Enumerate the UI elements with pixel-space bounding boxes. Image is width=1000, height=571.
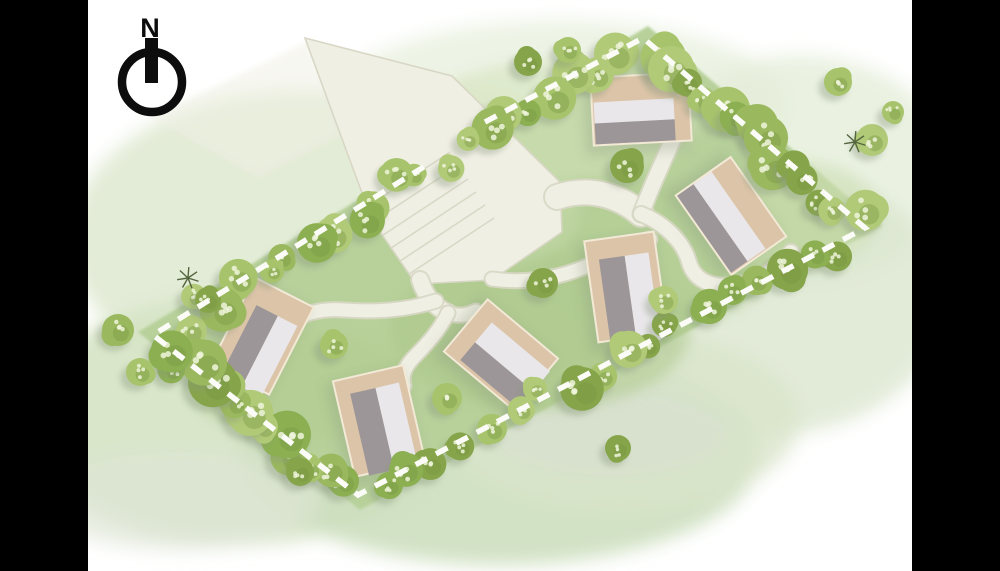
bare-tree-branch (188, 267, 189, 278)
tree-highlight (627, 167, 632, 172)
tree-highlight (840, 84, 844, 88)
tree-highlight (223, 375, 230, 382)
tree-highlight (199, 298, 203, 302)
tree-highlight (830, 255, 834, 259)
tree-highlight (669, 322, 673, 326)
tree-highlight (402, 172, 407, 177)
tree-highlight (385, 170, 390, 175)
letterbox-right (912, 0, 1000, 571)
tree-highlight (229, 276, 234, 281)
tree-highlight (873, 137, 877, 141)
tree-highlight (829, 259, 833, 263)
tree-canopy-dark (442, 394, 457, 409)
tree-highlight (574, 47, 578, 51)
tree-highlight (491, 430, 495, 434)
tree-highlight (660, 327, 664, 331)
tree-highlight (461, 449, 465, 453)
bare-tree-branch (855, 131, 856, 142)
tree-highlight (219, 309, 225, 315)
tree-highlight (854, 213, 860, 219)
tree-highlight (603, 379, 607, 383)
tree-highlight (676, 64, 683, 71)
masterplan-svg: N (0, 0, 1000, 571)
tree-highlight (761, 122, 767, 128)
tree-canopy-dark (425, 459, 441, 475)
tree-highlight (429, 461, 433, 465)
tree-highlight (622, 160, 627, 165)
tree-highlight (650, 344, 653, 347)
tree-highlight (862, 207, 868, 213)
tree-highlight (724, 285, 728, 289)
tree-highlight (628, 173, 633, 178)
tree-highlight (885, 108, 888, 111)
tree-highlight (322, 475, 327, 480)
tree-highlight (138, 375, 142, 379)
tree-highlight (538, 387, 541, 390)
tree-highlight (494, 127, 500, 133)
compass: N (122, 13, 182, 112)
tree-highlight (452, 167, 456, 171)
tree-highlight (271, 273, 274, 276)
tree-highlight (531, 65, 535, 69)
tree-highlight (457, 445, 461, 449)
tree-highlight (831, 210, 835, 214)
compass-needle (145, 38, 158, 83)
tree-highlight (296, 473, 300, 477)
tree-highlight (392, 478, 396, 482)
tree-highlight (388, 488, 392, 492)
tree-highlight (810, 203, 814, 207)
tree-highlight (617, 164, 622, 169)
tree-highlight (606, 372, 610, 376)
tree-highlight (161, 352, 167, 358)
tree-highlight (534, 387, 537, 390)
tree-highlight (405, 477, 410, 482)
tree-highlight (618, 41, 624, 47)
tree-highlight (729, 109, 733, 113)
letterbox-left (0, 0, 88, 571)
tree-highlight (314, 472, 318, 476)
tree-highlight (258, 403, 264, 409)
tree-highlight (522, 63, 526, 67)
tree-highlight (461, 136, 464, 139)
tree-highlight (137, 368, 141, 372)
tree-canopy-dark (464, 136, 475, 147)
tree-highlight (339, 346, 343, 350)
tree-highlight (858, 197, 864, 203)
tree-highlight (141, 367, 145, 371)
tree-highlight (274, 272, 277, 275)
tree-highlight (545, 283, 549, 287)
tree-highlight (659, 294, 663, 298)
tree-highlight (328, 464, 333, 469)
tree-highlight (562, 46, 566, 50)
tree-highlight (442, 164, 446, 168)
tree-highlight (814, 195, 818, 199)
tree-highlight (837, 82, 841, 86)
tree-highlight (730, 283, 734, 287)
tree-highlight (759, 166, 765, 172)
tree-highlight (212, 364, 218, 370)
tree-highlight (240, 402, 244, 406)
tree-highlight (862, 215, 868, 221)
tree-highlight (392, 167, 397, 172)
tree-highlight (190, 330, 194, 334)
site-plan-canvas: N (0, 0, 1000, 571)
tree-highlight (114, 320, 118, 324)
tree-highlight (300, 474, 304, 478)
tree-highlight (117, 325, 121, 329)
tree-canopy-dark (548, 92, 570, 114)
tree-highlight (194, 323, 198, 327)
tree-highlight (571, 388, 577, 394)
tree-highlight (491, 134, 497, 140)
tree-highlight (358, 212, 363, 217)
tree-highlight (316, 241, 322, 247)
tree-highlight (490, 426, 494, 430)
tree-highlight (468, 139, 471, 142)
tree-highlight (662, 320, 666, 324)
tree-canopy-dark (859, 204, 880, 225)
tree-highlight (272, 268, 275, 271)
tree-highlight (566, 49, 570, 53)
tree-highlight (777, 258, 783, 264)
tree-highlight (489, 125, 495, 131)
tree-highlight (232, 266, 237, 271)
tree-highlight (707, 301, 712, 306)
tree-canopy-dark (575, 382, 597, 404)
tree-highlight (837, 254, 841, 258)
tree-highlight (528, 57, 532, 61)
tree-highlight (327, 349, 331, 353)
tree-highlight (615, 445, 619, 449)
tree-highlight (754, 278, 758, 282)
tree-highlight (616, 448, 620, 452)
tree-highlight (659, 299, 663, 303)
tree-highlight (629, 346, 634, 351)
tree-highlight (203, 295, 207, 299)
tree-highlight (183, 326, 187, 330)
tree-highlight (729, 290, 733, 294)
tree-highlight (362, 228, 367, 233)
tree-highlight (889, 109, 892, 112)
tree-highlight (226, 306, 232, 312)
tree-highlight (768, 131, 774, 137)
tree-highlight (543, 279, 547, 283)
tree-highlight (521, 110, 525, 114)
tree-highlight (451, 163, 455, 167)
tree-highlight (221, 302, 227, 308)
tree-highlight (759, 157, 765, 163)
tree-highlight (660, 304, 664, 308)
tree-highlight (445, 395, 449, 399)
plan-layers (25, 20, 950, 565)
tree-highlight (331, 345, 335, 349)
tree-highlight (896, 106, 899, 109)
tree-highlight (595, 73, 600, 78)
tree-highlight (448, 169, 452, 173)
tree-highlight (307, 243, 313, 249)
tree-highlight (868, 144, 872, 148)
tree-highlight (554, 103, 560, 109)
roof-dark (595, 119, 676, 144)
tree-highlight (461, 443, 465, 447)
tree-highlight (137, 364, 141, 368)
tree-highlight (548, 277, 552, 281)
tree-highlight (332, 339, 336, 343)
tree-highlight (695, 99, 699, 103)
tree-highlight (197, 351, 203, 357)
tree-highlight (259, 410, 265, 416)
tree-highlight (866, 140, 870, 144)
tree-highlight (736, 290, 740, 294)
tree-highlight (663, 75, 670, 82)
tree-highlight (193, 291, 197, 295)
tree-highlight (297, 433, 304, 440)
tree-highlight (534, 281, 538, 285)
tree-highlight (362, 219, 367, 224)
tree-highlight (666, 294, 670, 298)
tree-highlight (395, 466, 400, 471)
tree-highlight (600, 70, 605, 75)
tree-highlight (546, 94, 552, 100)
tree-highlight (828, 206, 832, 210)
tree-highlight (809, 247, 813, 251)
tree-highlight (499, 124, 505, 130)
tree-highlight (617, 453, 621, 457)
